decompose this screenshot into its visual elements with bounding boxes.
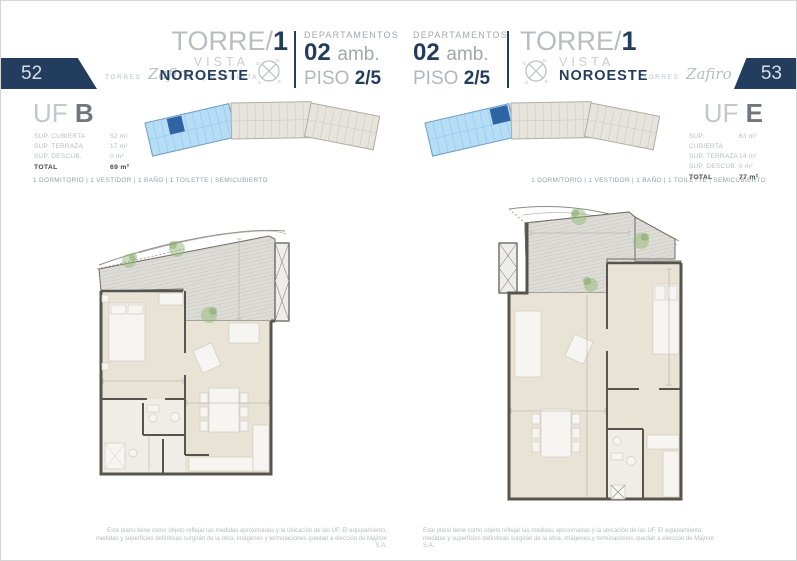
unit-heading-left: UF B	[33, 98, 94, 129]
page-number: 53	[761, 63, 782, 84]
spec-value: 17 m²	[110, 142, 142, 152]
vista-label-right: VISTA	[559, 55, 614, 69]
spec-label: SUP. DESCUB.	[34, 152, 110, 162]
key-plan-segment-highlighted	[425, 104, 516, 156]
disclaimer-line1: Este plano tiene como objeto reflejar la…	[423, 528, 723, 536]
spec-label: SUP. CUBIERTA	[34, 132, 110, 142]
spec-value: 0 m²	[739, 162, 763, 172]
tower-title-right: TORRE/1	[520, 26, 637, 57]
header-divider-right	[507, 31, 509, 88]
vista-label-left: VISTA	[131, 55, 249, 69]
spec-label: SUP. TERRAZA	[34, 142, 110, 152]
uf-label: UF	[704, 98, 739, 128]
disclaimer-left: Este plano tiene como objeto reflejar la…	[91, 528, 387, 551]
page-number: 52	[21, 63, 42, 84]
tower-name: TORRE/	[171, 26, 273, 56]
header-divider-left	[294, 31, 296, 88]
orientation-label-right: NOROESTE	[559, 68, 648, 84]
spec-row: SUP. TERRAZA 17 m²	[34, 142, 142, 152]
unit-specs-left: SUP. CUBIERTA 52 m² SUP. TERRAZA 17 m² S…	[34, 132, 142, 174]
departamentos-block-left: DEPARTAMENTOS 02 amb. PISO 2/5	[304, 30, 399, 90]
uf-letter: E	[746, 98, 763, 128]
tower-title-left: TORRE/1	[156, 26, 288, 57]
unit-heading-right: UF E	[691, 98, 763, 129]
key-plan-left	[137, 83, 387, 163]
compass-o: O	[256, 61, 260, 66]
key-plan-segment-3	[305, 103, 380, 150]
departamentos-count: 02	[413, 39, 440, 66]
brand-torres: TORRES	[643, 74, 680, 81]
floor-plan-uf-b	[89, 203, 307, 508]
compass-n: N	[543, 58, 546, 63]
spec-row: SUP. TERRAZA 14 m²	[689, 152, 763, 162]
disclaimer-right: Este plano tiene como objeto reflejar la…	[423, 528, 723, 551]
departamentos-amb: amb.	[446, 44, 488, 65]
disclaimer-line2: medidas y superficies definitivas surgir…	[91, 536, 387, 551]
compass-n: N	[276, 58, 279, 63]
spec-label: SUP. DESCUB.	[689, 162, 739, 172]
page-number-tab-left: 52	[1, 58, 97, 89]
total-label: TOTAL	[34, 162, 110, 174]
spec-row: SUP. CUBIERTA 52 m²	[34, 132, 142, 142]
uf-letter: B	[75, 98, 94, 128]
stair-shaft	[499, 243, 517, 293]
tower-name: TORRE/	[520, 26, 622, 56]
orientation-label-left: NOROESTE	[131, 68, 249, 84]
key-plan-right	[417, 83, 667, 163]
brand-zafiro: Zafiro	[686, 65, 732, 83]
spec-label: SUP. CUBIERTA	[689, 132, 739, 152]
spec-row: SUP. DESCUB. 0 m²	[689, 162, 763, 172]
floor-plan-uf-e	[479, 199, 707, 511]
spec-row: SUP. DESCUB. 0 m²	[34, 152, 142, 162]
spec-value: 14 m²	[739, 152, 763, 162]
departamentos-block-right: DEPARTAMENTOS 02 amb. PISO 2/5	[413, 30, 508, 90]
disclaimer-line2: medidas y superficies definitivas surgir…	[423, 536, 723, 551]
departamentos-count: 02	[304, 39, 331, 66]
spec-label: SUP. TERRAZA	[689, 152, 739, 162]
spec-row-total: TOTAL 69 m²	[34, 162, 142, 174]
disclaimer-line1: Este plano tiene como objeto reflejar la…	[91, 528, 387, 536]
departamentos-amb: amb.	[337, 44, 379, 65]
tower-number: 1	[273, 26, 288, 56]
stair-shaft	[275, 243, 289, 321]
spec-value: 63 m²	[739, 132, 763, 152]
spec-value: 52 m²	[110, 132, 142, 142]
key-plan-segment-2	[231, 102, 312, 139]
compass-icon: N O S E	[253, 54, 285, 86]
key-plan-segment-highlighted	[145, 104, 236, 156]
tower-number: 1	[622, 26, 637, 56]
compass-icon: N O S E	[520, 54, 552, 86]
total-value: 69 m²	[110, 162, 142, 174]
brochure-spread: 52 TORRES Zafiro | NORDELTA TORRE/1 VIST…	[0, 0, 797, 561]
key-plan-segment-2	[511, 102, 592, 139]
page-number-tab-right: 53	[734, 58, 796, 89]
unit-features-right: 1 DORMITORIO | 1 VESTIDOR | 1 BAÑO | 1 T…	[456, 177, 766, 184]
uf-label: UF	[33, 98, 68, 128]
spec-value: 0 m²	[110, 152, 142, 162]
spec-row: SUP. CUBIERTA 63 m²	[689, 132, 763, 152]
compass-o: O	[523, 61, 527, 66]
unit-features-left: 1 DORMITORIO | 1 VESTIDOR | 1 BAÑO | 1 T…	[33, 177, 268, 184]
key-plan-segment-3	[585, 103, 660, 150]
